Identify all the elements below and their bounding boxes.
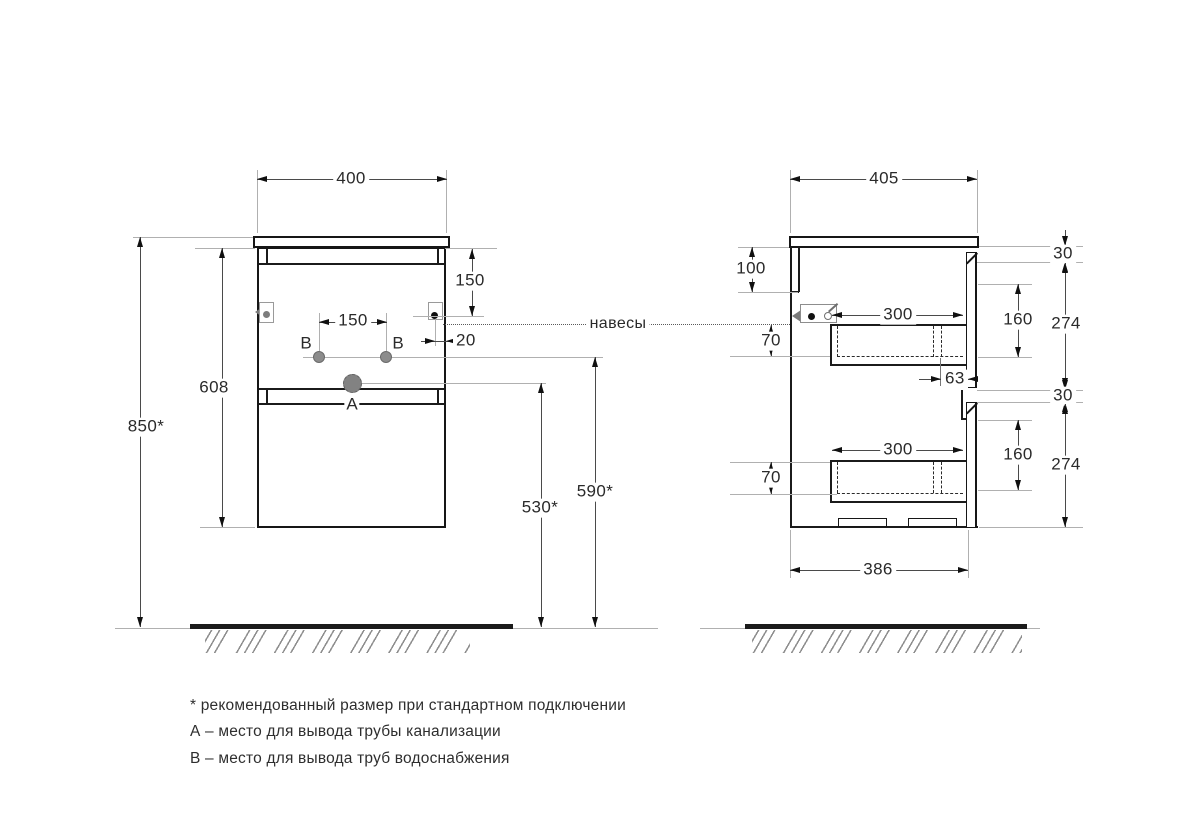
front-top-rail-line — [259, 263, 444, 265]
dim-bottom-width: 386 — [860, 561, 896, 580]
dim-b-spacing: 150 — [335, 312, 371, 331]
drawer-box-dashed — [933, 326, 934, 357]
dim-arrow — [832, 312, 842, 318]
dim-drawer-box: 70 — [758, 332, 784, 351]
ext-line — [978, 420, 1032, 421]
hanger-dot — [263, 311, 270, 318]
drawer-box-line — [830, 460, 832, 502]
front-mid-rail-tick — [266, 388, 268, 403]
water-point-b — [313, 351, 325, 363]
dim-arrow — [137, 237, 143, 247]
hangers-label: навесы — [587, 315, 650, 333]
cabinet-foot — [838, 518, 887, 527]
dim-arrow — [425, 338, 435, 344]
legend-b: В – место для вывода труб водоснабжения — [190, 750, 510, 768]
dim-drawer-depth: 300 — [880, 441, 916, 460]
ext-line — [968, 530, 969, 578]
cabinet-foot — [908, 518, 957, 527]
dim-drawer-box: 70 — [758, 469, 784, 488]
legend-note: * рекомендованный размер при стандартном… — [190, 697, 626, 715]
ext-line — [133, 237, 253, 238]
water-point-b — [380, 351, 392, 363]
floor-thick-front — [190, 624, 513, 629]
ext-line — [730, 494, 837, 495]
dim-drawer-front: 160 — [1000, 446, 1036, 465]
side-back-inner-line — [798, 247, 800, 292]
side-drawer-panel — [966, 252, 977, 388]
hanger-dot — [808, 313, 815, 320]
ext-line — [730, 356, 830, 357]
dim-arrow — [257, 176, 267, 182]
drawer-box-dashed — [837, 462, 838, 493]
side-back-wall — [790, 247, 792, 528]
label-a: А — [344, 396, 359, 413]
wall-hook-icon — [786, 310, 801, 322]
drawer-box-dashed — [941, 462, 942, 493]
dim-arrow — [592, 357, 598, 367]
dim-arrow — [1015, 347, 1021, 357]
supply-level-line — [303, 357, 603, 358]
dim-arrow — [953, 312, 963, 318]
ext-line — [195, 248, 255, 249]
dim-mount-height: 850* — [125, 418, 168, 437]
dim-hanger-offset: 150 — [452, 272, 488, 291]
dim-siphon-offset: 63 — [942, 370, 968, 389]
dim-arrow — [953, 447, 963, 453]
dim-arrow — [437, 176, 447, 182]
dim-arrow — [219, 248, 225, 258]
drawer-box-line — [830, 324, 832, 366]
drawer-box-dashed — [837, 326, 838, 357]
dim-arrow — [749, 247, 755, 257]
dim-arrow — [469, 249, 475, 259]
label-b: В — [298, 335, 313, 352]
dim-arrow — [968, 376, 978, 382]
floor-hatch-front — [205, 630, 470, 653]
dim-arrow — [832, 447, 842, 453]
front-mid-rail-tick — [437, 388, 439, 403]
dim-arrow — [377, 319, 387, 325]
ext-line — [413, 316, 484, 317]
dim-arrow — [219, 517, 225, 527]
dim-supply-height: 590* — [574, 483, 617, 502]
ext-line — [978, 357, 1032, 358]
floor-hatch-side — [752, 630, 1022, 653]
drawer-box-dashed — [837, 356, 963, 357]
dim-arrow — [958, 567, 968, 573]
dim-arrow — [967, 176, 977, 182]
dim-arrow — [1062, 517, 1068, 527]
dim-arrow — [137, 617, 143, 627]
drawer-box-dashed — [933, 462, 934, 493]
front-top-rail-tick — [437, 249, 439, 263]
dim-drain-height: 530* — [519, 499, 562, 518]
dim-panel-height: 274 — [1048, 456, 1084, 475]
side-rail-step — [961, 390, 963, 419]
legend-a: А – место для вывода трубы канализации — [190, 723, 501, 741]
drain-level-line — [360, 383, 546, 384]
technical-drawing: 400 850* 608 150 навесы 20 150 — [0, 0, 1200, 831]
dim-panel-height: 274 — [1048, 315, 1084, 334]
front-top-rail-tick — [266, 249, 268, 263]
drawer-box-line — [830, 364, 966, 366]
dim-front-gap: 30 — [1050, 387, 1076, 406]
dim-hanger-edge: 20 — [453, 332, 479, 351]
ext-line — [978, 490, 1032, 491]
dim-arrow — [538, 617, 544, 627]
ext-line — [940, 358, 941, 386]
ext-line — [738, 292, 798, 293]
dim-arrow — [1015, 284, 1021, 294]
side-drawer-panel — [966, 402, 977, 528]
side-countertop — [789, 236, 979, 248]
floor-thick-side — [745, 624, 1027, 629]
dim-arrow — [538, 383, 544, 393]
dim-arrow — [1015, 420, 1021, 430]
ext-line — [730, 462, 830, 463]
dim-arrow — [319, 319, 329, 325]
ext-line — [978, 284, 1032, 285]
dim-arrow — [592, 617, 598, 627]
dim-back-top: 100 — [733, 260, 769, 279]
dim-front-gap: 30 — [1050, 245, 1076, 264]
ext-line — [977, 170, 978, 233]
hanger-ring — [824, 312, 832, 320]
drain-point-a — [343, 374, 362, 393]
dim-arrow — [749, 282, 755, 292]
dim-arrow — [1015, 480, 1021, 490]
drawer-box-line — [830, 501, 966, 503]
dim-arrow — [931, 376, 941, 382]
dim-body-height: 608 — [196, 379, 232, 398]
drawer-box-dashed — [941, 326, 942, 357]
ext-line — [979, 527, 1083, 528]
dim-arrow — [790, 567, 800, 573]
dim-arrow — [469, 306, 475, 316]
dim-drawer-depth: 300 — [880, 306, 916, 325]
dim-arrow — [1062, 404, 1068, 414]
drawer-box-line — [830, 460, 966, 462]
ext-line — [200, 527, 255, 528]
dim-front-width: 400 — [333, 170, 369, 189]
dim-side-width: 405 — [866, 170, 902, 189]
ext-line — [738, 247, 789, 248]
label-b: В — [390, 335, 405, 352]
dim-arrow — [790, 176, 800, 182]
dim-arrow — [1062, 263, 1068, 273]
dim-drawer-front: 160 — [1000, 311, 1036, 330]
drawer-box-dashed — [837, 493, 963, 494]
